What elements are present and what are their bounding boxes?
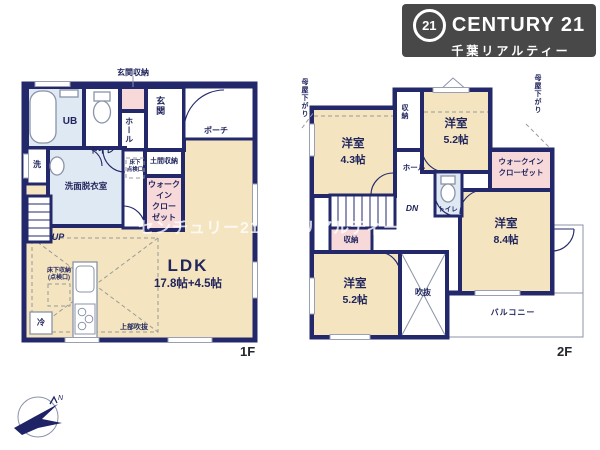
- label-entry-storage: 玄関収納: [117, 68, 149, 77]
- toilet-tank-icon-1f: [94, 92, 110, 101]
- label-room52tr-size: 5.2帖: [443, 134, 468, 146]
- balcony-side: [552, 225, 583, 293]
- logo-21-circle-icon: 21: [413, 9, 446, 42]
- label-toilet-2f: トイレ: [438, 206, 458, 213]
- label-wic2f-2: クローゼット: [499, 169, 544, 178]
- label-fridge: 冷: [37, 318, 45, 327]
- label-porch: ポーチ: [204, 126, 228, 135]
- window: [253, 184, 258, 226]
- floor-1-drawing: [20, 66, 264, 348]
- label-wic1f-1: ウォーク: [148, 180, 180, 189]
- label-room52bl: 洋室: [344, 278, 367, 291]
- logo-sub-name: 千葉リアルティー: [402, 42, 596, 59]
- label-underfloor-access-2: 点検口: [127, 167, 144, 173]
- compass-north-zigzag: [50, 397, 57, 404]
- window: [24, 154, 29, 178]
- label-roof-slope-right: 母屋下がり: [533, 74, 541, 114]
- label-roof-slope-left: 母屋下がり: [300, 78, 308, 118]
- label-open-above: 上部吹抜: [120, 324, 148, 332]
- label-wic1f-3: クロー: [152, 202, 176, 211]
- floor-1-tag: 1F: [240, 344, 255, 359]
- balcony-door-arc: [552, 229, 574, 251]
- compass-north-label: N: [58, 395, 64, 402]
- label-toilet-1f: トイレ: [90, 146, 114, 155]
- century21-logo: 21 CENTURY 21 千葉リアルティー: [402, 4, 596, 57]
- window: [35, 82, 70, 87]
- label-room52tr: 洋室: [445, 118, 468, 131]
- compass-bird-icon: [14, 404, 62, 435]
- window: [65, 338, 99, 343]
- toilet-icon-1f: [94, 101, 111, 123]
- label-room84: 洋室: [495, 218, 518, 231]
- label-genkan: 玄関: [155, 96, 165, 116]
- label-ldk: LDK: [168, 256, 209, 276]
- bathtub-icon: [30, 91, 56, 143]
- label-underfloor-storage-1: 床下収納: [47, 268, 71, 275]
- floorplan-canvas: 21 CENTURY 21 千葉リアルティー: [0, 0, 600, 450]
- label-room52bl-size: 5.2帖: [342, 294, 367, 306]
- label-balcony: バルコニー: [491, 308, 536, 317]
- floor-2-plan: 母屋下がり 母屋下がり 洋室 4.3帖 収納 洋室 5.2帖 ウォークイン クロ…: [300, 66, 596, 350]
- label-wic1f-4: ゼット: [152, 213, 176, 222]
- kitchen-counter: [73, 262, 97, 338]
- label-room43: 洋室: [342, 138, 365, 151]
- label-laundry: 洗: [33, 160, 41, 169]
- window: [310, 124, 315, 156]
- label-hall-2f: ホール: [403, 164, 426, 173]
- toilet-tank-icon-2f: [441, 176, 455, 184]
- label-room43-size: 4.3帖: [340, 154, 365, 166]
- label-underfloor-storage-2: (点検口): [48, 275, 70, 282]
- label-ub: UB: [63, 116, 77, 128]
- label-wic1f-2: イン: [156, 191, 172, 200]
- label-hall-1f: ホール: [124, 117, 133, 144]
- label-doma-storage: 土間収納: [150, 158, 178, 166]
- label-washroom: 洗面脱衣室: [65, 182, 108, 192]
- toilet-icon-2f: [441, 184, 455, 202]
- label-closet-mid: 収納: [344, 236, 359, 245]
- sink-icon: [50, 157, 64, 175]
- stairs-1f: [27, 196, 51, 242]
- room-entry-storage: [120, 87, 146, 111]
- window: [433, 88, 469, 93]
- roof-slope-line-right: [526, 124, 550, 148]
- label-room84-size: 8.4帖: [493, 234, 518, 246]
- closet-top: [395, 90, 422, 150]
- label-wic2f-1: ウォークイン: [499, 158, 544, 167]
- window: [475, 291, 520, 296]
- floor-2-tag: 2F: [557, 344, 572, 359]
- label-dn: DN: [406, 204, 418, 214]
- label-underfloor-access-1: 床下: [129, 160, 140, 166]
- logo-brand-name: CENTURY 21: [452, 14, 585, 37]
- label-closet-top: 収納: [400, 104, 408, 120]
- label-ldk-size: 17.8帖+4.5帖: [154, 278, 222, 291]
- bath-counter-icon: [60, 90, 78, 97]
- floor-1-plan: 玄関収納 UB トイレ ホール 玄関 ポーチ 洗 洗面脱衣室 床下 点検口 UP…: [20, 66, 264, 348]
- window: [330, 335, 370, 340]
- room-43: [312, 108, 395, 196]
- window: [168, 338, 212, 343]
- window: [253, 262, 258, 298]
- label-stairs-up: UP: [52, 232, 65, 242]
- compass: N: [10, 390, 66, 446]
- label-fukinuke: 吹抜: [415, 288, 431, 297]
- window: [310, 278, 315, 314]
